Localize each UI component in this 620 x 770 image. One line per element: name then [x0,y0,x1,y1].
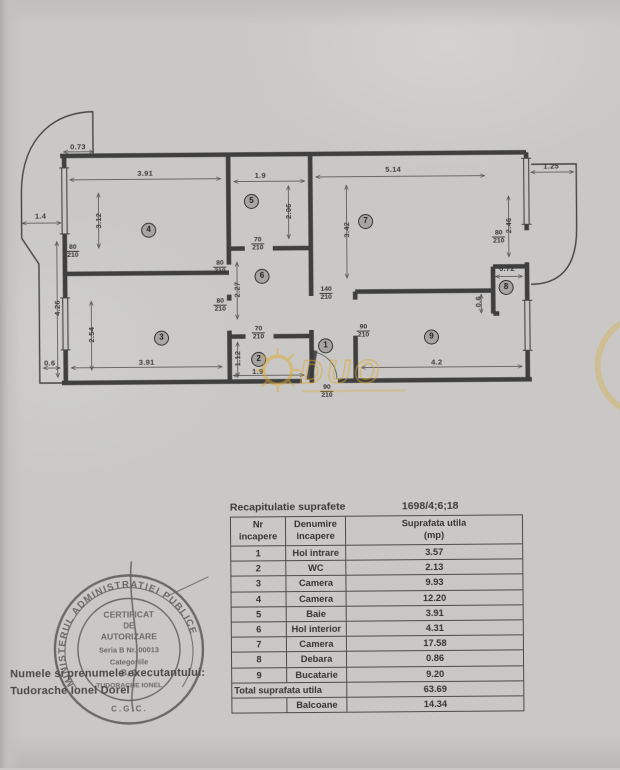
door-size-label: 80210 [66,244,79,260]
dimension-label: 2.46 [504,217,513,233]
room-number-circle: 3 [154,331,169,346]
table-cell: Balcoane [287,697,347,713]
table-cell: 12.20 [346,589,523,606]
room-number-circle: 6 [254,269,269,284]
dimension-label: 0.73 [70,142,86,151]
stamp-line: AUTORIZARE [101,631,158,641]
table-header-cell: Denumireincapere [285,516,345,545]
certification-stamp: MINISTERUL ADMINISTRATIEI PUBLICE CERTIF… [28,549,230,751]
dimension-label: 0.6 [44,358,55,367]
table-cell: 4.31 [346,620,523,637]
window-room7 [521,158,532,224]
table-cell: WC [286,560,346,576]
dimension-label: 1.25 [543,162,559,171]
door-size-label: 70210 [252,325,265,341]
room-number-circle: 4 [141,223,156,238]
table-cell: 14.34 [347,696,524,713]
watermark-graphic: DUO [248,339,448,403]
table-cell: 0.86 [346,650,523,667]
table-cell: Hol intrare [286,545,346,561]
table-cell: 3.57 [346,544,523,561]
dimension-label: 4.26 [53,300,62,316]
room-number-circle: 8 [499,280,514,295]
window-kitchen [522,300,532,350]
room-number-circle: 5 [244,194,259,209]
executor-name: Tudorache Ionel Dorel [10,682,240,701]
table-cell: 5 [231,607,286,623]
table-cell: 9.20 [347,665,524,682]
table-cell: Baie [286,606,346,622]
windows [59,158,532,354]
table-title-row: Recapitulatie suprafete 1698/4;6;18 [230,499,519,516]
watermark-text: DUO [300,353,383,390]
stamp-line: DE [123,621,135,630]
table-cell: 3 [231,576,286,592]
table-header-cell: Suprafata utila(mp) [345,515,522,545]
table-cell: 63.69 [347,681,524,698]
right-balcony [528,164,577,284]
room-number-circle: 7 [358,214,373,229]
table-cell: Hol interior [286,621,346,637]
dimension-label: 1.12 [233,351,242,367]
table-cell: Camera [286,576,346,592]
watermark-logo: DUO [248,339,448,403]
dimension-label: 3.42 [342,222,351,238]
scan-content: 0.733.911.95.141.251.43.122.063.422.462.… [0,0,620,770]
door-size-label: 70210 [251,236,264,252]
dimension-label: 1.4 [35,212,46,221]
table-cell: 2 [231,561,286,577]
dimension-label: 3.12 [94,213,103,229]
table-cell: 17.58 [346,635,523,652]
table-balcony-row: Balcoane14.34 [232,696,524,713]
table-header-row: NrincapereDenumireincapereSuprafata util… [230,515,522,546]
watermark-arc [597,315,620,416]
stamp-line: CERTIFICAT [103,609,154,619]
dimension-label: 1.9 [255,171,266,180]
scanned-page: 0.733.911.95.141.251.43.122.063.422.462.… [0,0,620,768]
door-size-label: 140210 [319,286,332,302]
table-cell: 4 [231,591,286,607]
executor-block: Numele si prenumele executantului: Tudor… [10,665,240,701]
floor-plan: 0.733.911.95.141.251.43.122.063.422.462.… [0,0,620,472]
table-cell: Total suprafata utila [232,682,347,698]
sun-icon [256,348,300,392]
executor-label: Numele si prenumele executantului: [10,665,240,684]
table-cell: 2.13 [346,559,523,576]
table-cell: Bucatarie [287,667,347,683]
table-cell: Debara [286,652,346,668]
area-table-section: Recapitulatie suprafete 1698/4;6;18 Nrin… [230,499,521,713]
table-cell: 6 [231,622,286,638]
dimension-label: 2.54 [87,327,96,343]
cadastral-reference: 1698/4;6;18 [402,500,459,512]
table-header-cell: Nrincapere [230,517,285,546]
table-cell [232,698,287,714]
table-cell: 3.91 [346,605,523,622]
dimension-label: 3.91 [139,358,155,367]
dimension-label: 5.14 [385,165,401,174]
table-body: 1Hol intrare3.572WC2.133Camera9.934Camer… [231,544,524,714]
door-size-label: 80210 [214,298,227,314]
table-cell: 9.93 [346,574,523,591]
door-size-label: 80210 [213,260,226,276]
window-room4 [59,168,70,234]
dimension-label: 2.06 [284,203,293,219]
table-cell: 7 [231,637,286,653]
dimension-label: 3.91 [137,169,153,178]
stamp-bottom-text: C.G.C. [111,704,148,713]
dimension-label: 0.6 [474,296,483,307]
table-title: Recapitulatie suprafete [230,501,346,514]
door-size-label: 90210 [357,324,370,340]
table-cell: 1 [231,546,286,562]
dimension-label: 2.27 [233,282,242,298]
area-table: NrincapereDenumireincapereSuprafata util… [230,514,525,714]
table-cell: Camera [286,591,346,607]
table-cell: Camera [286,636,346,652]
dimension-label: 0.72 [499,264,515,273]
stamp-line: Seria B Nr. 00013 [99,645,159,654]
door-size-label: 80210 [492,229,505,245]
